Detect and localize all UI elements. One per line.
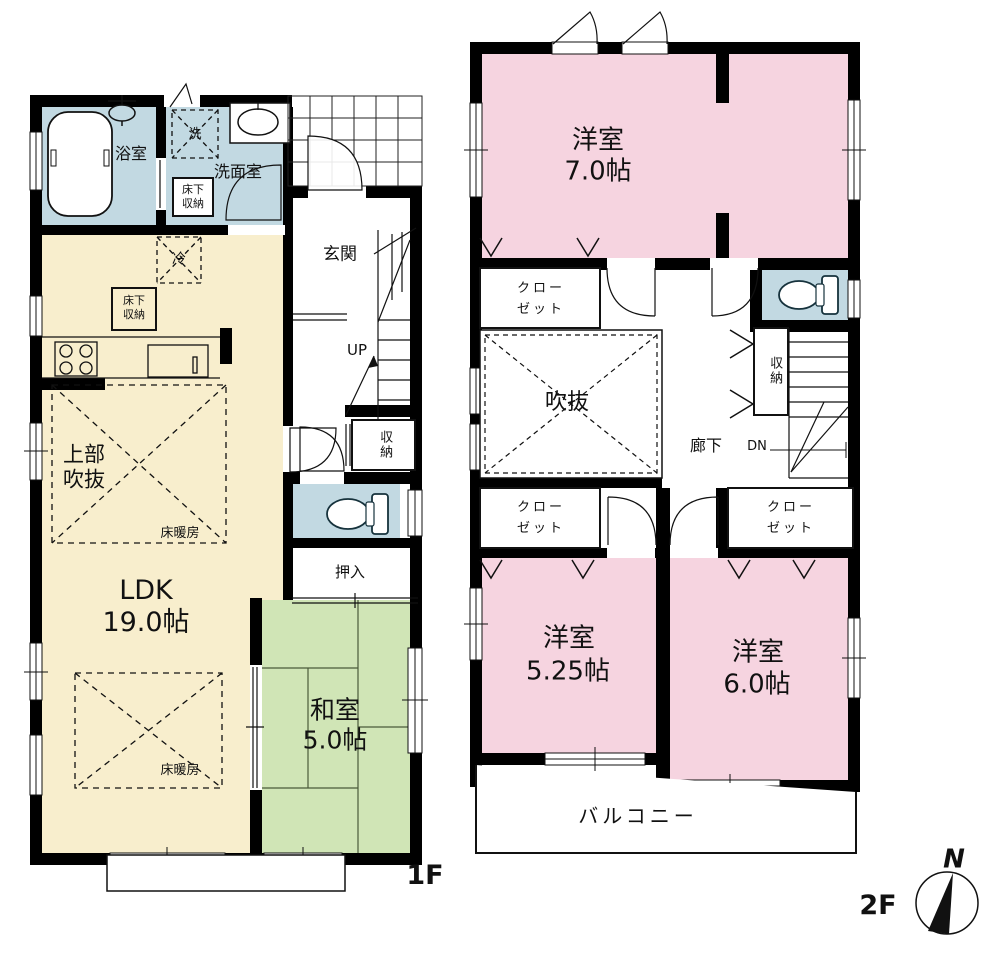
- label-room2: 洋室: [543, 625, 595, 654]
- label-void-2f: 吹抜: [545, 391, 589, 415]
- ldk-area: [42, 235, 283, 853]
- sink-icon: [230, 103, 290, 143]
- label-closet-top-line1: クロー: [517, 282, 565, 296]
- label-underfloor2-line1: 床下: [123, 295, 145, 307]
- label-underfloor1-line1: 床下: [182, 184, 204, 196]
- label-oshiire: 押入: [335, 564, 365, 581]
- label-compass-north: N: [943, 846, 965, 875]
- label-washitsu: 和室: [310, 696, 360, 724]
- label-underfloor1-line2: 収納: [182, 198, 204, 210]
- label-washer: 洗: [188, 128, 201, 142]
- bedroom2-area: [482, 558, 656, 753]
- label-ldk-size: 19.0帖: [102, 608, 189, 638]
- label-room1: 洋室: [572, 127, 624, 156]
- label-void-above-line2: 吹抜: [63, 468, 105, 491]
- label-floor-heating1: 床暖房: [160, 527, 199, 541]
- label-room2-size: 5.25帖: [526, 658, 610, 687]
- compass-icon: [916, 872, 978, 934]
- label-fridge: 冷: [172, 252, 186, 267]
- awning-window-icons: [553, 12, 667, 44]
- label-floor-1f: 1F: [406, 861, 443, 891]
- floor-plan: 浴室 洗 洗面室 床下 収納 玄関 冷 床下 収納 UP 収納 上部 吹抜 床暖…: [0, 0, 1000, 957]
- label-storage-2f: 収納: [767, 356, 781, 386]
- floor-plan-drawing: [0, 0, 1000, 957]
- bedroom1-area: [482, 54, 848, 258]
- bathtub-icon: [48, 112, 112, 216]
- label-room3-size: 6.0帖: [723, 671, 790, 700]
- label-balcony: バルコニー: [578, 805, 698, 827]
- label-hallway: 廊下: [690, 437, 722, 455]
- closet-bl-box: [480, 488, 600, 548]
- label-closet-top-line2: ゼット: [517, 303, 565, 317]
- label-storage-1f: 収納: [377, 430, 391, 460]
- label-closet-bl-line2: ゼット: [517, 522, 565, 536]
- label-underfloor2-line2: 収納: [123, 309, 145, 321]
- label-entrance: 玄関: [323, 246, 357, 265]
- label-floor-2f: 2F: [859, 891, 896, 921]
- label-washroom: 洗面室: [214, 163, 262, 181]
- label-room1-size: 7.0帖: [564, 158, 631, 187]
- label-closet-br-line2: ゼット: [767, 522, 815, 536]
- label-dn: DN: [747, 440, 767, 454]
- label-floor-heating2: 床暖房: [160, 764, 199, 778]
- label-washitsu-size: 5.0帖: [303, 726, 368, 754]
- deck-outline: [107, 855, 345, 891]
- label-closet-bl-line1: クロー: [517, 501, 565, 515]
- label-room3: 洋室: [732, 639, 784, 668]
- label-up: UP: [347, 342, 367, 359]
- label-ldk: LDK: [119, 576, 173, 606]
- label-closet-br-line1: クロー: [767, 501, 815, 515]
- closet-br-box: [728, 488, 853, 548]
- label-bath: 浴室: [115, 145, 147, 163]
- closet-top-box: [480, 268, 600, 328]
- label-void-above-line1: 上部: [63, 443, 105, 466]
